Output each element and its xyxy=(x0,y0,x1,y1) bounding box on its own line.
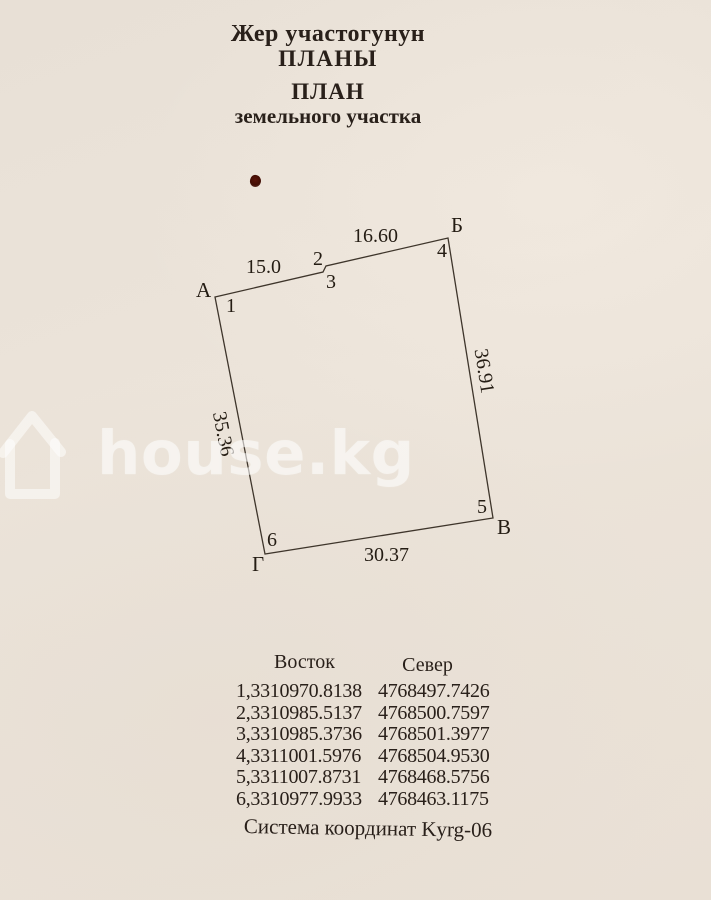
cell-east-value: 2,3310985.5137 xyxy=(236,703,378,725)
cell-north-value: 4768463.1175 xyxy=(378,789,489,811)
side-length-3-4: 16.60 xyxy=(353,226,398,246)
table-row: 6,3310977.99334768463.1175 xyxy=(236,789,506,811)
cell-east-value: 4,3311001.5976 xyxy=(236,746,378,768)
side-length-1-2: 15.0 xyxy=(246,257,281,277)
vertex-number-5: 5 xyxy=(477,497,487,517)
cell-east-value: 3,3310985.3736 xyxy=(236,724,378,746)
vertex-number-4: 4 xyxy=(437,241,447,261)
vertex-number-1: 1 xyxy=(226,296,236,316)
vertex-number-6: 6 xyxy=(267,530,277,550)
side-length-5-6: 30.37 xyxy=(364,545,409,565)
table-row: 2,3310985.51374768500.7597 xyxy=(236,703,506,725)
table-row: 1,3310970.81384768497.7426 xyxy=(236,681,506,703)
cell-east-value: 1,3310970.8138 xyxy=(236,681,378,703)
parcel-boundary-polygon xyxy=(215,238,493,554)
cell-north-value: 4768468.5756 xyxy=(378,767,489,789)
corner-label-b: Б xyxy=(451,215,463,235)
cell-north-value: 4768501.3977 xyxy=(378,724,489,746)
vertex-number-3: 3 xyxy=(326,272,336,292)
scanned-land-plot-document: Жер участогунун ПЛАНЫ ПЛАН земельного уч… xyxy=(0,0,711,900)
cell-east-value: 5,3311007.8731 xyxy=(236,767,378,789)
table-header-east: Восток xyxy=(242,651,367,674)
vertex-number-2: 2 xyxy=(313,249,323,269)
corner-label-a: А xyxy=(196,280,211,300)
table-row: 4,3311001.59764768504.9530 xyxy=(236,746,506,768)
table-row: 5,3311007.87314768468.5756 xyxy=(236,767,506,789)
cell-north-value: 4768497.7426 xyxy=(378,681,489,703)
corner-label-v: В xyxy=(497,517,511,537)
table-header-north: Север xyxy=(370,654,485,677)
corner-label-g: Г xyxy=(252,554,264,574)
coordinate-system-note: Система координат Kyrg-06 xyxy=(238,814,498,842)
cell-north-value: 4768500.7597 xyxy=(378,703,489,725)
cell-north-value: 4768504.9530 xyxy=(378,746,489,768)
coordinates-rows: 1,3310970.81384768497.74262,3310985.5137… xyxy=(236,681,506,810)
cell-east-value: 6,3310977.9933 xyxy=(236,789,378,811)
table-row: 3,3310985.37364768501.3977 xyxy=(236,724,506,746)
